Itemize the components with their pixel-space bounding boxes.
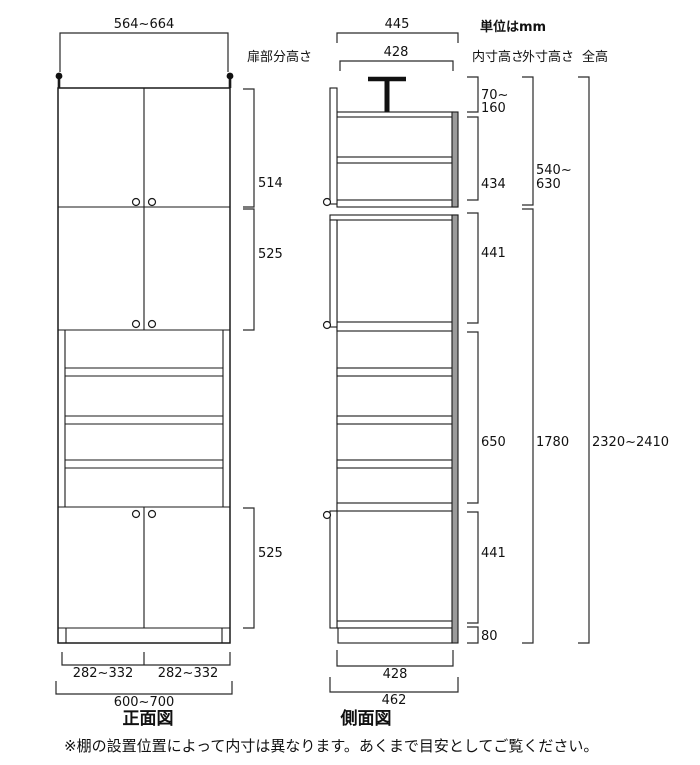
outer-height-header: 外寸高さ [522,49,574,65]
side-mid-door-handle [324,322,331,329]
door-section-height-label: 扉部分高さ [247,49,312,65]
inner-height-brackets [467,77,478,643]
side-top-outer-depth-value: 445 [385,17,410,32]
side-bottom-inner-depth-bracket [337,650,453,666]
upper-door-height-bracket [243,89,254,207]
furniture-dimension-diagram: 564~664 [0,0,700,761]
overall-height-value: 2320~2410 [592,435,669,450]
side-upper-unit [324,88,459,207]
upper-outer-height-line1: 540~ [536,163,572,178]
side-upper-back-panel [452,112,458,207]
base-height-value: 80 [481,629,498,644]
upper-mid-inner-height-value: 441 [481,246,506,261]
side-lower-door [330,511,337,628]
front-view-title: 正面図 [123,709,174,729]
ceiling-tension-rod-icon [368,79,406,112]
main-outer-height-value: 1780 [536,435,569,450]
front-top-width-value: 564~664 [114,17,175,32]
side-base [338,628,452,643]
front-top-width-bracket [60,33,228,72]
side-upper-door [330,88,337,204]
side-main-back-panel [452,215,458,643]
front-left-door-width-value: 282~332 [73,666,134,681]
footnote: ※棚の設置位置によって内寸は異なります。あくまで目安としてご覧ください。 [64,737,598,755]
side-main-unit [324,215,459,643]
outer-height-brackets [522,77,533,643]
diagram-canvas: 564~664 [0,0,700,761]
side-bottom-inner-depth-value: 428 [383,667,408,682]
side-upper-door-handle [324,199,331,206]
side-top-inner-depth-value: 428 [384,45,409,60]
overall-height-bracket [578,77,589,643]
inner-height-header: 内寸高さ [472,49,524,65]
middle-door-height-bracket [243,209,254,330]
front-door-width-brackets [62,652,230,665]
front-total-width-value: 600~700 [114,695,175,710]
side-top-outer-depth-bracket [337,33,458,43]
side-lower-door-handle [324,512,331,519]
front-total-width-bracket [56,681,232,694]
middle-door-height-value: 525 [258,247,283,262]
tension-pin-left-icon [56,73,63,88]
upper-outer-height-line2: 630 [536,177,561,192]
lower-mid-inner-height-value: 441 [481,546,506,561]
side-mid-door [330,220,337,327]
open-inner-height-value: 650 [481,435,506,450]
upper-door-height-value: 514 [258,176,283,191]
side-view-title: 側面図 [340,708,392,729]
side-view: 445 428 [324,17,459,729]
front-right-door-width-value: 282~332 [158,666,219,681]
side-top-inner-depth-bracket [340,61,453,71]
side-total-depth-value: 462 [382,693,407,708]
lower-door-height-bracket [243,508,254,628]
upper-inner-height-value: 434 [481,177,506,192]
overall-height-header: 全高 [582,49,608,65]
unit-label: 単位はmm [480,19,546,35]
lower-door-height-value: 525 [258,546,283,561]
front-view: 564~664 [56,17,312,729]
tension-pin-right-icon [227,73,234,88]
ceiling-gap-value-line2: 160 [481,101,506,116]
height-dimension-columns: 単位はmm 内寸高さ 外寸高さ 全高 70~ 160 434 441 650 4… [467,19,669,644]
